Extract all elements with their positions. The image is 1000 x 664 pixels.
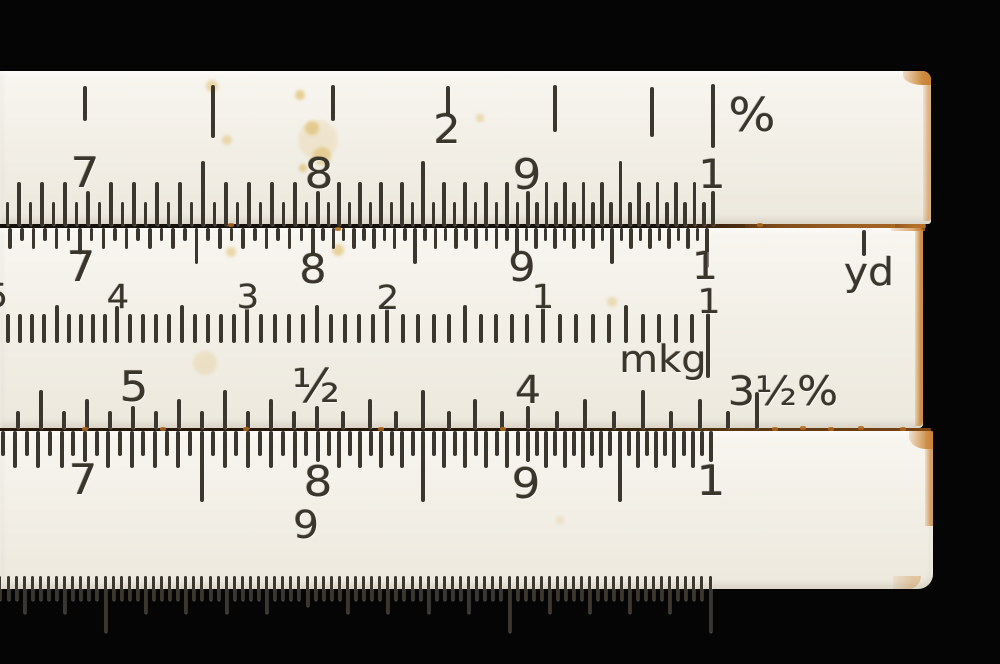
- slide-middle-scale-tick: [357, 314, 361, 343]
- top-stator-number-7: 7: [71, 152, 100, 194]
- slide-top-log-scale-tick: [352, 228, 356, 249]
- bottom-stator-log-scale-tick: [130, 431, 134, 468]
- top-stator-log-scale-tick: [190, 202, 194, 226]
- bottom-stator-log-scale-tick: [200, 431, 204, 502]
- slide-top-log-scale-tick: [403, 228, 407, 241]
- percent-scale-top-tick: [650, 87, 655, 137]
- top-stator-log-scale-tick: [674, 182, 678, 226]
- percent-scale-top-tick: [331, 85, 336, 121]
- slide-middle-scale-tick: [259, 314, 263, 343]
- bottom-fine-ruler-scale-tick: [386, 576, 389, 614]
- slide-middle-scale-tick: [219, 314, 223, 343]
- slide-bottom-percent-scale-tick: [108, 411, 112, 429]
- bottom-fine-ruler-scale-tick: [516, 576, 519, 601]
- top-stator-log-scale-tick: [656, 182, 660, 226]
- bottom-fine-ruler-scale-tick: [644, 576, 647, 601]
- slide-top-log-scale-tick: [648, 228, 652, 249]
- slide-bottom-percent-scale-tick: [555, 411, 559, 429]
- bottom-fine-ruler-scale-tick: [120, 576, 123, 601]
- slide-middle-scale-tick: [55, 305, 59, 343]
- top-stator-log-scale-tick: [463, 182, 467, 226]
- slide-top-log-scale-tick: [160, 228, 164, 241]
- bottom-fine-ruler-scale-tick: [71, 576, 74, 601]
- bottom-fine-ruler-scale-tick: [676, 576, 679, 601]
- slide-bottom-percent-scale-tick: [223, 390, 227, 429]
- slide-top-log-scale-tick: [265, 228, 269, 249]
- slide-top-number-8: 8: [299, 250, 326, 290]
- top-stator-log-scale-tick: [224, 182, 228, 226]
- bottom-stator-log-scale-tick: [304, 431, 308, 456]
- bottom-fine-ruler-scale-tick: [660, 576, 663, 601]
- slide-middle-scale-tick: [558, 314, 562, 343]
- slide-bottom-percent-scale-tick: [421, 390, 425, 429]
- top-stator-log-scale-tick: [495, 202, 499, 226]
- top-stator-log-scale-tick: [600, 182, 604, 226]
- slide-top-log-scale-tick: [332, 228, 336, 249]
- bottom-stator-log-scale-tick: [484, 431, 488, 468]
- top-stator-log-scale-tick: [453, 202, 457, 226]
- top-stator-log-scale-tick: [155, 182, 159, 226]
- rust-dot: [500, 427, 506, 431]
- slide-bottom-percent-scale-tick: [583, 399, 587, 429]
- rust-dot: [858, 426, 864, 430]
- top-stator-log-scale-tick: [702, 202, 706, 226]
- slide-top-log-scale-tick: [241, 228, 245, 249]
- bottom-stator-log-scale-tick: [636, 431, 640, 468]
- slide-middle-scale-tick: [180, 305, 184, 343]
- bottom-stator-log-scale-tick: [400, 431, 404, 468]
- bottom-fine-ruler-scale-tick: [168, 576, 171, 601]
- slide-middle-scale-tick: [42, 314, 46, 343]
- stain-spot: [226, 247, 236, 257]
- top-stator-log-scale-tick: [609, 202, 613, 226]
- bottom-stator-log-scale-tick: [348, 431, 352, 456]
- slide-middle-scale-tick: [607, 314, 611, 343]
- slide-bottom-percent-scale-tick: [16, 411, 20, 429]
- rust-patch: [923, 71, 931, 221]
- top-stator-number-8: 8: [305, 153, 334, 195]
- slide-middle-scale-tick: [141, 314, 145, 343]
- slide-middle-scale-tick: [6, 314, 10, 343]
- top-stator-log-scale-tick: [390, 202, 394, 226]
- slide-middle-scale-tick: [30, 314, 34, 343]
- bottom-fine-ruler-scale-tick: [144, 576, 147, 614]
- bottom-fine-ruler-scale-tick: [112, 576, 115, 601]
- bottom-stator-number-1: 1: [697, 460, 726, 502]
- bottom-fine-ruler-scale-tick: [411, 576, 414, 601]
- percent-unit-label: %: [728, 92, 775, 138]
- bottom-stator-log-scale-tick: [608, 431, 612, 456]
- top-stator-log-scale-tick: [505, 182, 509, 226]
- slide-middle-scale-tick: [574, 314, 578, 343]
- slide-middle-scale-tick: [232, 314, 236, 343]
- slide-bottom-percent-scale-tick: [154, 411, 158, 429]
- bottom-fine-ruler-scale-tick: [378, 576, 381, 601]
- slide-top-number-1: 1: [692, 247, 718, 285]
- bottom-stator-log-scale-tick: [293, 431, 297, 468]
- bottom-stator-log-scale-tick: [599, 431, 603, 468]
- slide-middle-number-5: 5: [0, 279, 8, 312]
- slide-middle-scale-tick: [416, 314, 420, 343]
- percent-scale-top-tick: [553, 85, 558, 132]
- slide-middle-scale-tick: [343, 314, 347, 343]
- slide-middle-scale-tick: [287, 314, 291, 343]
- rust-dot: [772, 427, 778, 431]
- bottom-stator-log-scale-tick: [258, 431, 262, 456]
- slide-middle-scale-tick: [154, 314, 158, 343]
- top-stator-log-scale-tick: [348, 202, 352, 226]
- slide-middle-number-3: 3: [237, 280, 260, 313]
- bottom-stator-log-scale-tick: [141, 431, 145, 456]
- bottom-fine-ruler-scale-tick: [628, 576, 631, 614]
- top-stator-log-scale-tick: [421, 161, 425, 226]
- bottom-fine-ruler-scale-tick: [338, 576, 341, 601]
- top-stator-log-scale-tick: [63, 182, 67, 226]
- slide-bottom-percent-scale-tick: [669, 411, 673, 429]
- top-stator-log-scale-tick: [545, 182, 549, 226]
- stain-spot: [476, 114, 484, 122]
- top-stator-log-scale-tick: [411, 202, 415, 226]
- bottom-stator-log-scale-tick: [71, 431, 75, 456]
- bottom-fine-ruler-scale-tick: [709, 576, 712, 633]
- slide-middle-scale-tick: [510, 314, 514, 343]
- top-stator-log-scale-tick: [293, 182, 297, 226]
- slide-bottom-percent-scale-tick: [177, 399, 181, 429]
- bottom-fine-ruler-scale-tick: [39, 576, 42, 601]
- bottom-fine-ruler-scale-tick: [160, 576, 163, 601]
- rust-dot: [228, 223, 234, 227]
- slide-bottom-percent-scale-tick: [341, 411, 345, 429]
- top-stator-log-scale-tick: [516, 202, 520, 226]
- bottom-stator-log-scale-tick: [223, 431, 227, 468]
- top-stator-log-scale-tick: [259, 202, 263, 226]
- slide-bottom-percent-scale-tick: [698, 399, 702, 429]
- bottom-stator-log-scale-tick: [48, 431, 52, 456]
- slide-top-log-scale-tick: [677, 228, 681, 241]
- bottom-fine-ruler-scale-tick: [548, 576, 551, 614]
- slide-top-log-scale-tick: [113, 228, 117, 241]
- slide-top-log-scale-tick: [362, 228, 366, 241]
- bottom-fine-ruler-scale-tick: [596, 576, 599, 601]
- top-stator-log-scale-tick: [121, 202, 125, 226]
- rust-dot: [160, 427, 166, 431]
- bottom-stator-log-scale-tick: [645, 431, 649, 456]
- slide-bottom-percent-scale-tick: [200, 411, 204, 429]
- bottom-stator-log-scale-tick: [700, 431, 704, 456]
- slide-bottom-percent-scale-tick: [368, 399, 372, 429]
- slide-top-log-scale-tick: [55, 228, 59, 249]
- slide-top-log-scale-tick: [276, 228, 280, 241]
- slide-top-log-scale-tick: [563, 228, 567, 241]
- bottom-stator-log-scale-tick: [13, 431, 17, 468]
- slide-middle-scale-tick: [91, 314, 95, 343]
- bottom-stator-log-scale-tick: [453, 431, 457, 456]
- slide-middle-scale-tick: [463, 305, 467, 343]
- top-stator-log-scale-tick: [29, 202, 33, 226]
- rust-patch: [915, 228, 923, 426]
- rust-dot: [82, 427, 88, 431]
- slide-top-log-scale-tick: [230, 228, 234, 241]
- bottom-fine-ruler-scale-tick: [700, 576, 703, 601]
- stain-spot: [556, 516, 564, 524]
- bottom-fine-ruler-scale-tick: [419, 576, 422, 601]
- bottom-stator-number-8: 8: [304, 461, 333, 503]
- top-stator-log-scale-tick: [201, 161, 205, 226]
- bottom-fine-ruler-scale-tick: [668, 576, 671, 614]
- rust-dot: [243, 427, 249, 431]
- rust-dot: [378, 427, 384, 431]
- slide-top-log-scale-tick: [125, 228, 129, 249]
- bottom-fine-ruler-scale-tick: [104, 576, 107, 633]
- bottom-fine-ruler-scale-tick: [176, 576, 179, 601]
- percent-scale-number-2: 2: [433, 110, 460, 150]
- top-stator-log-scale-tick: [270, 182, 274, 226]
- bottom-fine-ruler-scale-tick: [467, 576, 470, 614]
- slide-middle-scale-tick: [447, 314, 451, 343]
- bottom-fine-ruler-scale-tick: [265, 576, 268, 614]
- bottom-stator-log-scale-tick: [581, 431, 585, 468]
- slide-bottom-percent-scale-tick: [447, 411, 451, 429]
- slide-middle-scale-tick: [591, 314, 595, 343]
- bottom-fine-ruler-scale-tick: [136, 576, 139, 601]
- bottom-fine-ruler-scale-tick: [23, 576, 26, 614]
- slide-middle-scale-tick: [479, 314, 483, 343]
- slide-middle-index-number-1: 1: [697, 285, 720, 319]
- bottom-fine-ruler-scale-tick: [451, 576, 454, 601]
- bottom-stator-log-scale-tick: [553, 431, 557, 456]
- bottom-fine-ruler-scale-tick: [556, 576, 559, 601]
- bottom-stator-log-scale-tick: [474, 431, 478, 456]
- bottom-stator-log-scale-tick: [563, 431, 567, 468]
- slide-bottom-percent-scale-tick: [85, 399, 89, 429]
- slide-bottom-number-4: 4: [515, 371, 541, 409]
- bottom-fine-ruler-scale-tick: [443, 576, 446, 601]
- slide-middle-scale-tick: [128, 314, 132, 343]
- percent-scale-top-tick: [711, 84, 716, 148]
- bottom-stator-log-scale-tick: [526, 431, 530, 462]
- bottom-stator-log-scale-tick: [358, 431, 362, 468]
- slide-middle-number-4: 4: [107, 280, 130, 313]
- top-stator-log-scale-tick: [327, 202, 331, 226]
- slide-top-log-scale-tick: [667, 228, 671, 249]
- slide-middle-scale-tick: [371, 314, 375, 343]
- bottom-fine-ruler-scale-tick: [47, 576, 50, 601]
- slide-top-log-scale-tick: [136, 228, 140, 241]
- top-stator-log-scale-tick: [109, 182, 113, 226]
- slide-bottom-percent-scale-tick: [394, 411, 398, 429]
- slide-top-log-scale-tick: [444, 228, 448, 241]
- bottom-fine-ruler-scale-tick: [306, 576, 309, 607]
- bottom-fine-ruler-scale-tick: [209, 576, 212, 601]
- bottom-fine-ruler-scale-tick: [483, 576, 486, 601]
- stain-spot: [193, 351, 217, 375]
- slide-top-log-scale-tick: [474, 228, 478, 249]
- slide-top-log-scale-tick: [629, 228, 633, 249]
- top-stator-log-scale-tick: [40, 182, 44, 226]
- bottom-stator-log-scale-tick: [327, 431, 331, 456]
- slide-top-log-scale-tick: [20, 228, 24, 241]
- bottom-fine-ruler-scale-tick: [31, 576, 34, 601]
- bottom-stator-log-scale-tick: [495, 431, 499, 456]
- top-stator-log-scale-tick: [6, 202, 10, 226]
- slide-bottom-number-3half: 3½%: [728, 372, 838, 412]
- slide-top-log-scale-tick: [8, 228, 12, 249]
- bottom-fine-ruler-scale-tick: [297, 576, 300, 601]
- bottom-fine-ruler-scale-tick: [362, 576, 365, 601]
- bottom-fine-ruler-scale-tick: [249, 576, 252, 601]
- top-stator-number-1: 1: [698, 155, 725, 195]
- bottom-fine-ruler-scale-tick: [370, 576, 373, 601]
- bottom-stator-log-scale-tick: [188, 431, 192, 456]
- slide-bottom-number-5: 5: [120, 366, 149, 408]
- slide-top-log-scale-tick: [601, 228, 605, 241]
- top-stator-log-scale-tick: [98, 202, 102, 226]
- bottom-fine-ruler-scale-tick: [184, 576, 187, 614]
- slide-top-log-scale-tick: [485, 228, 489, 241]
- top-stator-log-scale-tick: [358, 182, 362, 226]
- bottom-stator-log-scale-tick: [106, 431, 110, 468]
- top-stator-log-scale-tick: [474, 202, 478, 226]
- bottom-stator-log-scale-tick: [572, 431, 576, 456]
- bottom-stator-log-scale-tick: [463, 431, 467, 468]
- bottom-stator-log-scale-tick: [516, 431, 520, 456]
- slide-top-log-scale-tick: [572, 228, 576, 249]
- slide-middle-scale-tick: [206, 314, 210, 343]
- slide-middle-scale-tick: [432, 314, 436, 343]
- slide-top-log-scale-tick: [553, 228, 557, 249]
- slide-bottom-percent-scale-tick: [269, 399, 273, 429]
- slide-top-log-scale-tick: [67, 228, 71, 241]
- bottom-fine-ruler-scale-tick: [402, 576, 405, 601]
- bottom-fine-ruler-scale-tick: [257, 576, 260, 601]
- top-stator-log-scale-tick: [400, 182, 404, 226]
- slide-bottom-percent-scale-tick: [473, 399, 477, 429]
- slide-middle-scale-tick: [67, 314, 71, 343]
- bottom-fine-ruler-scale-tick: [95, 576, 98, 601]
- bottom-fine-ruler-scale-tick: [346, 576, 349, 614]
- bottom-fine-ruler-scale-tick: [192, 576, 195, 601]
- bottom-stator-log-scale-tick: [118, 431, 122, 456]
- slide-top-log-scale-tick: [90, 228, 94, 241]
- slide-top-log-scale-tick: [43, 228, 47, 241]
- slide-top-log-scale-tick: [206, 228, 210, 241]
- top-stator-log-scale-tick: [213, 202, 217, 226]
- bottom-fine-ruler-scale-tick: [394, 576, 397, 601]
- rust-dot: [828, 427, 834, 431]
- bottom-fine-ruler-scale-tick: [200, 576, 203, 601]
- bottom-fine-ruler-scale-tick: [564, 576, 567, 601]
- bottom-fine-ruler-scale-tick: [540, 576, 543, 601]
- bottom-stator-log-scale-tick: [672, 431, 676, 468]
- bottom-stator-log-scale-tick: [246, 431, 250, 468]
- top-stator-log-scale-tick: [563, 182, 567, 226]
- top-stator-log-scale-tick: [337, 182, 341, 226]
- bottom-stator-log-scale-tick: [505, 431, 509, 468]
- slide-top-log-scale-tick: [383, 228, 387, 241]
- bottom-stator-log-scale-tick: [234, 431, 238, 456]
- bottom-fine-ruler-scale-tick: [588, 576, 591, 614]
- top-stator-log-scale-tick: [379, 182, 383, 226]
- top-stator-log-scale-tick: [132, 182, 136, 226]
- top-stator-log-scale-tick: [665, 202, 669, 226]
- stain-spot: [295, 90, 305, 100]
- top-stator-log-scale-tick: [236, 202, 240, 226]
- bottom-fine-ruler-scale-tick: [330, 576, 333, 601]
- bottom-stator-log-scale-tick: [1, 431, 5, 456]
- bottom-stator-log-scale-tick: [691, 431, 695, 468]
- bottom-fine-ruler-scale-tick: [55, 576, 58, 601]
- bottom-fine-ruler-scale-tick: [217, 576, 220, 601]
- rust-patch: [745, 224, 895, 228]
- slide-middle-scale-tick: [273, 314, 277, 343]
- slide-top-log-scale-tick: [620, 228, 624, 241]
- slide-top-log-scale-tick: [195, 228, 199, 264]
- slide-top-log-scale-tick: [495, 228, 499, 249]
- bottom-stator-log-scale-tick: [535, 431, 539, 456]
- slide-top-log-scale-tick: [582, 228, 586, 241]
- slide-middle-scale-tick: [315, 305, 319, 343]
- mkg-unit-label: mkg: [619, 341, 706, 378]
- slide-top-log-scale-tick: [696, 228, 700, 241]
- bottom-stator-log-scale-tick: [211, 431, 215, 456]
- top-stator-log-scale-tick: [572, 202, 576, 226]
- bottom-fine-ruler-scale-tick: [273, 576, 276, 601]
- bottom-fine-ruler-scale-tick: [314, 576, 317, 601]
- bottom-fine-ruler-scale-tick: [225, 576, 228, 614]
- top-stator-log-scale-tick: [305, 202, 309, 226]
- slide-top-log-scale-tick: [434, 228, 438, 249]
- top-stator-log-scale-tick: [75, 202, 79, 226]
- top-stator-log-scale-tick: [591, 202, 595, 226]
- bottom-stator-log-scale-tick: [627, 431, 631, 456]
- slide-middle-scale-tick: [301, 314, 305, 343]
- slide-top-log-scale-tick: [505, 228, 509, 241]
- bottom-stator-log-scale-tick: [153, 431, 157, 468]
- bottom-fine-ruler-scale-tick: [435, 576, 438, 601]
- bottom-stator-log-scale-tick: [281, 431, 285, 456]
- bottom-fine-ruler-scale-tick: [87, 576, 90, 601]
- slide-top-log-scale-tick: [525, 228, 529, 241]
- top-stator-number-9: 9: [513, 154, 542, 196]
- bottom-stator-log-scale-tick: [663, 431, 667, 456]
- top-stator-log-scale-tick: [178, 182, 182, 226]
- top-stator-log-scale-tick: [484, 182, 488, 226]
- rust-dot: [900, 427, 906, 431]
- bottom-fine-ruler-scale-tick: [152, 576, 155, 601]
- bottom-fine-ruler-scale-tick: [79, 576, 82, 601]
- bottom-stator-log-scale-tick: [337, 431, 341, 468]
- slide-top-log-scale-tick: [253, 228, 257, 241]
- top-stator-log-scale-tick: [282, 202, 286, 226]
- top-stator-log-scale-tick: [535, 202, 539, 226]
- slide-top-log-scale-tick: [686, 228, 690, 249]
- bottom-stator-log-scale-tick: [95, 431, 99, 456]
- bottom-fine-ruler-scale-tick: [508, 576, 511, 633]
- bottom-fine-ruler-scale-tick: [427, 576, 430, 614]
- slide-top-log-scale-tick: [639, 228, 643, 241]
- top-stator-log-scale-tick: [167, 202, 171, 226]
- slide-top-log-scale-tick: [372, 228, 376, 249]
- slide-top-log-scale-tick: [544, 228, 548, 241]
- bottom-fine-ruler-scale-tick: [322, 576, 325, 601]
- bottom-stator-log-scale-tick: [269, 431, 273, 468]
- bottom-stator-log-scale-tick: [369, 431, 373, 456]
- slide-top-log-scale-tick: [321, 228, 325, 241]
- bottom-stator-log-scale-tick: [654, 431, 658, 468]
- top-stator-log-scale-tick: [554, 202, 558, 226]
- bottom-stator-log-scale-tick: [390, 431, 394, 456]
- rust-dot: [800, 426, 806, 430]
